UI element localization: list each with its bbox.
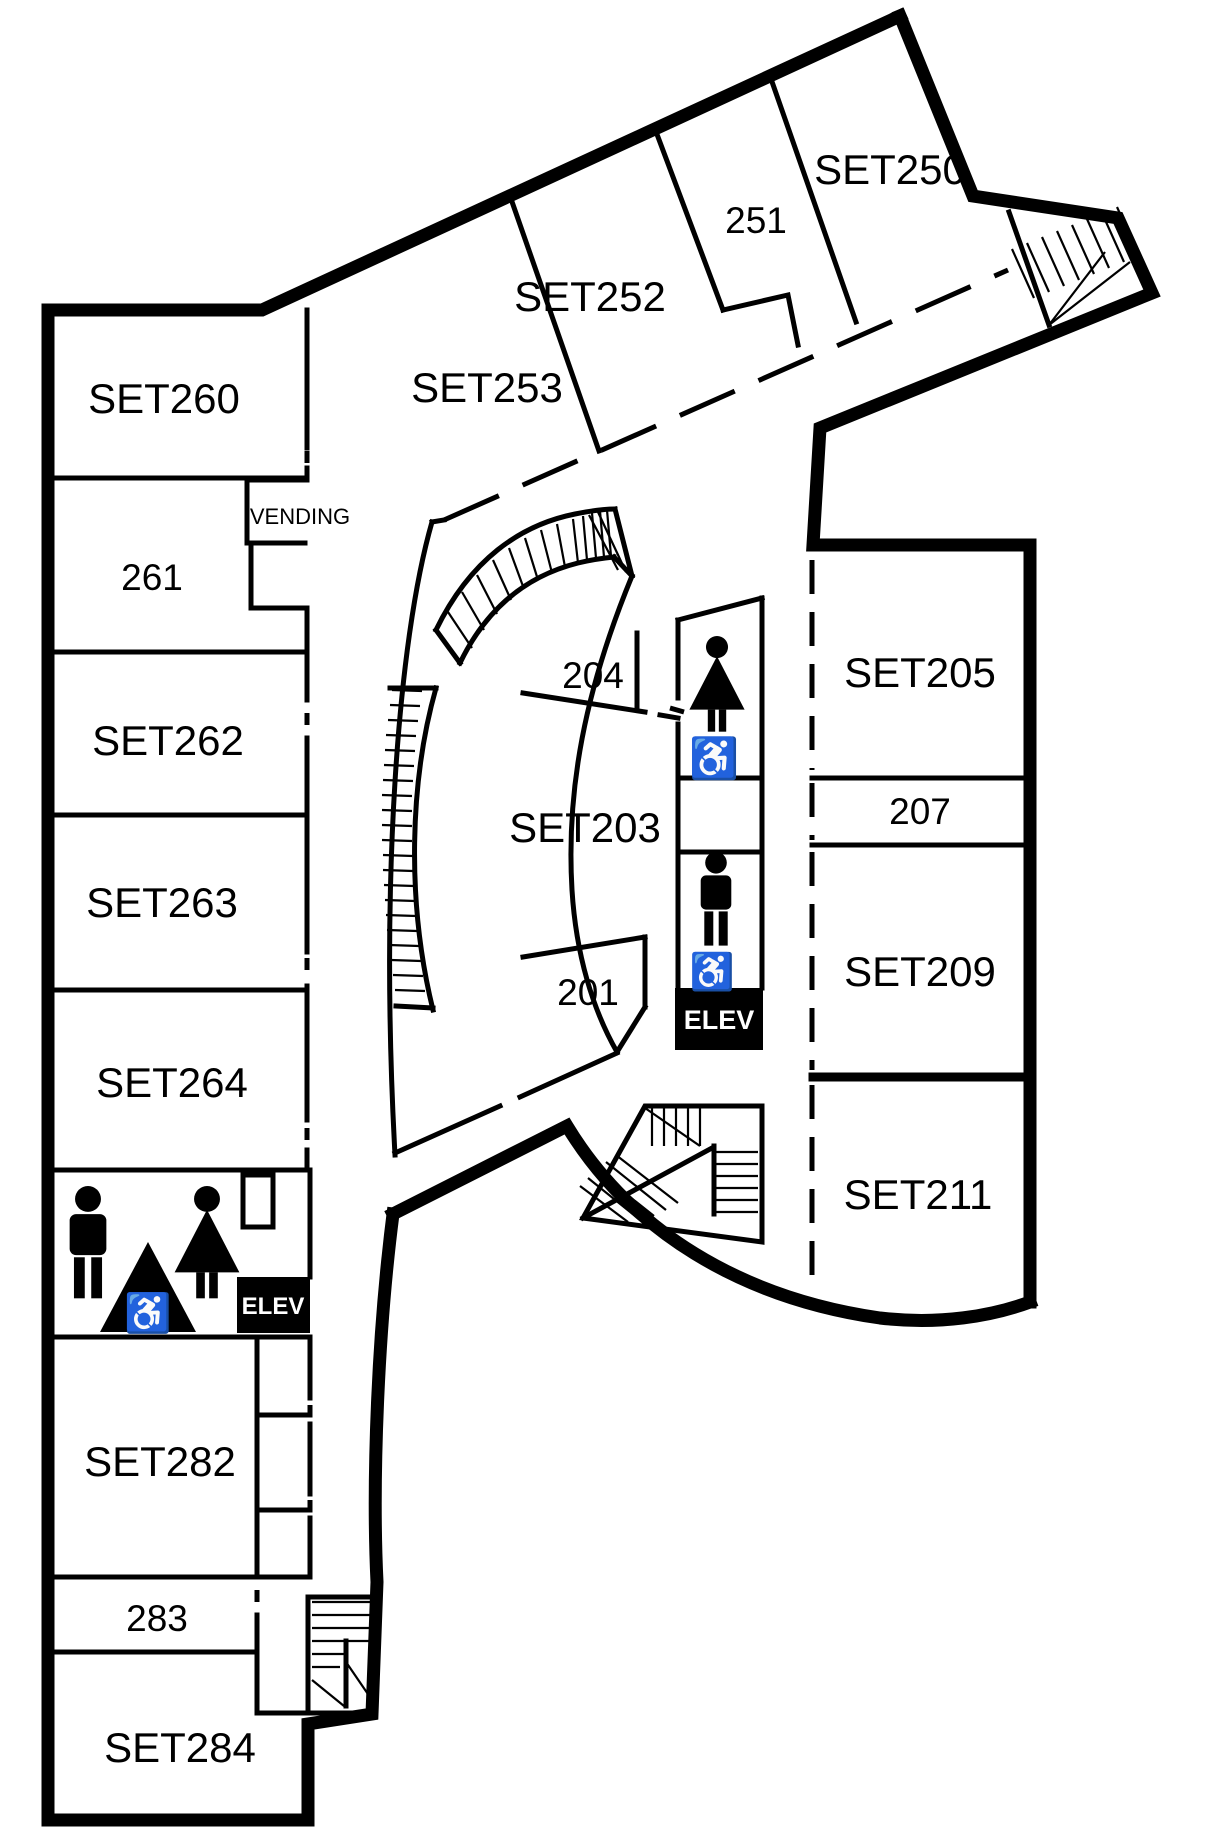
room-label-set252: SET252: [514, 273, 666, 320]
elevator-center-label: ELEV: [684, 1005, 755, 1035]
room-labels: SET260 261 VENDING SET262 SET263 SET264 …: [84, 146, 996, 1771]
elevator-west-label: ELEV: [242, 1293, 305, 1320]
room-label-251: 251: [725, 200, 787, 241]
men-restroom-icon: [701, 852, 732, 946]
room-label-204: 204: [562, 655, 624, 696]
wheelchair-icon: ♿: [689, 735, 739, 781]
room-label-set203: SET203: [509, 804, 661, 851]
central-stairs: [580, 1106, 762, 1242]
elevator-center: ELEV: [675, 988, 763, 1050]
room-label-set260: SET260: [88, 375, 240, 422]
floor-plan-canvas: ELEV ELEV ♿ ♿: [0, 0, 1222, 1848]
room-label-set250: SET250: [814, 146, 966, 193]
room-label-set262: SET262: [92, 717, 244, 764]
men-restroom-icon: [70, 1186, 107, 1298]
room-label-261: 261: [121, 557, 183, 598]
room-label-set284: SET284: [104, 1724, 256, 1771]
room-label-set263: SET263: [86, 879, 238, 926]
floor-plan-page: ELEV ELEV ♿ ♿: [0, 0, 1222, 1848]
restroom-icons-west: ♿: [70, 1186, 240, 1335]
restroom-icons-center: ♿ ♿: [689, 636, 745, 992]
room-label-set211: SET211: [844, 1171, 993, 1218]
wheelchair-icon: ♿: [690, 951, 735, 992]
women-restroom-icon: [689, 636, 744, 732]
room-label-set282: SET282: [84, 1438, 236, 1485]
room-label-set205: SET205: [844, 649, 996, 696]
room-label-207: 207: [889, 791, 951, 832]
curved-stairs-upper: [448, 510, 626, 648]
room-label-201: 201: [557, 972, 619, 1013]
elevator-west: ELEV: [237, 1277, 310, 1333]
room-label-set264: SET264: [96, 1059, 248, 1106]
wheelchair-icon: ♿: [124, 1291, 171, 1335]
southwest-stairs: [308, 1597, 376, 1713]
women-restroom-icon: [175, 1186, 240, 1298]
room-label-283: 283: [126, 1598, 188, 1639]
room-label-set253: SET253: [411, 364, 563, 411]
area-label-vending: VENDING: [250, 504, 350, 529]
room-label-set209: SET209: [844, 948, 996, 995]
